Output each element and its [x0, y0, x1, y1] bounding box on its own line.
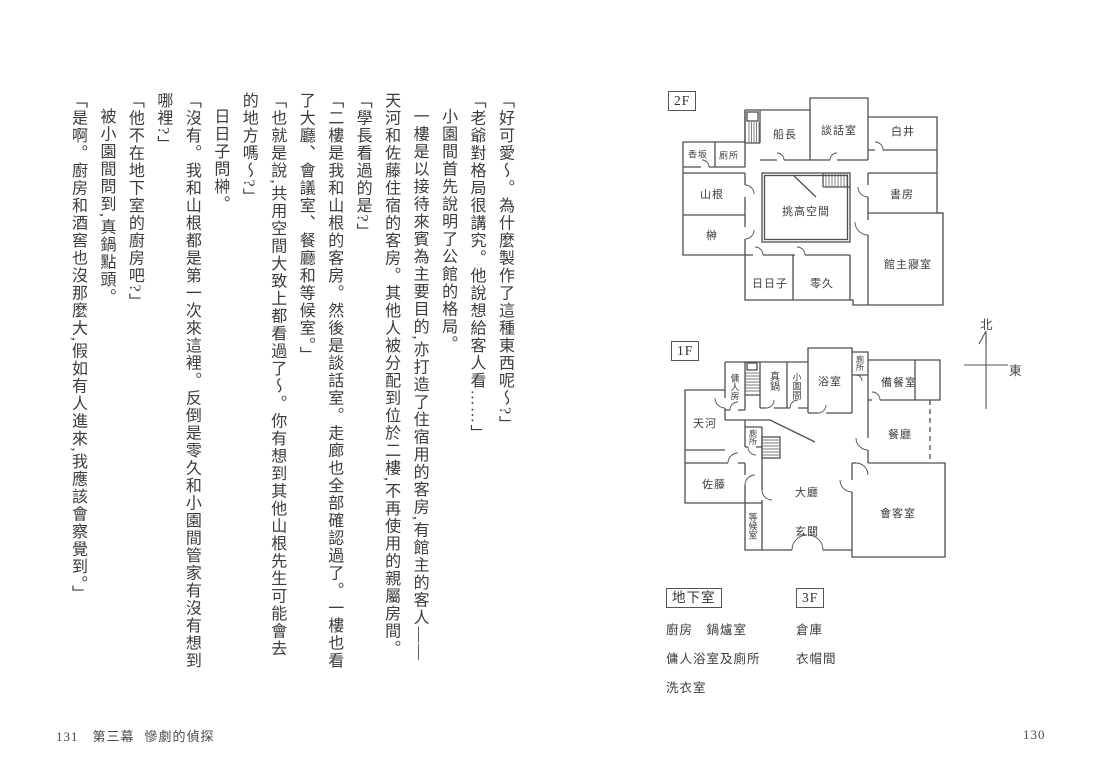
- legend-3f-label: 3F: [796, 588, 824, 608]
- room-label: 真鍋: [766, 371, 781, 391]
- legend-items-1: 倉庫衣帽間: [796, 619, 837, 677]
- room-label: 船長: [773, 126, 797, 142]
- room-label: 餐廳: [888, 426, 912, 442]
- compass-north-label: 北: [980, 314, 993, 333]
- legend-item: 衣帽間: [796, 648, 837, 667]
- room-label: 廁所: [719, 149, 739, 162]
- room-label: 大廳: [795, 484, 819, 500]
- room-label: 白井: [891, 123, 915, 139]
- paragraph: 「好可愛〜。為什麼製作了這種東西呢〜?」: [490, 92, 518, 670]
- room-label: 廁所: [748, 429, 759, 445]
- room-label: 談話室: [821, 122, 857, 138]
- room-label: 會客室: [880, 505, 916, 521]
- paragraph: 小園間首先說明了公館的格局。: [433, 92, 461, 670]
- room-label: 浴室: [818, 373, 842, 389]
- legend-item: 廚房 鍋爐室: [666, 619, 761, 638]
- room-label: 香坂: [688, 148, 708, 161]
- page-left: 「好可愛〜。為什麼製作了這種東西呢〜?」「老爺對格局很講究。他說想給客人看……」…: [0, 0, 550, 781]
- footer-title: 慘劇的偵探: [145, 729, 215, 744]
- room-label: 挑高空間: [782, 203, 830, 219]
- paragraph: 被小園間問到,真鍋點頭。: [91, 92, 119, 670]
- paragraph: 「老爺對格局很講究。他說想給客人看……」: [461, 92, 489, 670]
- room-label: 玄關: [795, 523, 819, 539]
- room-label: 山根: [700, 186, 724, 202]
- room-label: 書房: [890, 186, 914, 202]
- paragraph: 日日子問榊。: [205, 92, 233, 670]
- floorplan-1f: 傭人房真鍋小園間浴室廁所備餐室餐廳天河廁所佐藤大廳玄關等候室會客室: [660, 330, 960, 575]
- room-label: 館主寢室: [884, 256, 932, 272]
- legend-items-0: 廚房 鍋爐室傭人浴室及廁所洗衣室: [666, 619, 761, 706]
- room-label: 等候室: [747, 513, 760, 540]
- paragraph: 「也就是說,共用空間大致上都看過了〜。你有想到其他山根先生可能會去的地方嗎〜?」: [233, 92, 290, 670]
- paragraph: 一樓是以接待來賓為主要目的,亦打造了住宿用的客房,有館主的客人——天河和佐藤住宿…: [376, 92, 433, 670]
- legend-item: 傭人浴室及廁所: [666, 648, 761, 667]
- room-label: 零久: [810, 275, 834, 291]
- floor-label-1f: 1F: [671, 341, 699, 361]
- compass: 北 東: [952, 317, 1022, 417]
- room-label: 天河: [693, 415, 717, 431]
- room-label: 佐藤: [702, 476, 726, 492]
- room-label: 日日子: [752, 275, 788, 291]
- page-number-left: 131: [56, 729, 79, 744]
- legend-basement-label: 地下室: [666, 588, 722, 608]
- floorplan-2f: 香坂廁所船長談話室白井山根榊挑高空間書房館主寢室日日子零久: [665, 85, 960, 320]
- compass-east-label: 東: [1009, 360, 1022, 379]
- paragraph: 「他不在地下室的廚房吧?」: [119, 92, 147, 670]
- room-label: 備餐室: [881, 374, 917, 390]
- legend-item: 洗衣室: [666, 677, 761, 696]
- floor-label-2f: 2F: [668, 91, 696, 111]
- paragraph: 「學長看過的是?」: [347, 92, 375, 670]
- footer-chapter: 第三幕: [93, 729, 135, 744]
- paragraph: 「沒有。我和山根都是第一次來這裡。反倒是零久和小園間管家有沒有想到哪裡?」: [148, 92, 205, 670]
- page-number-right: 130: [1023, 727, 1046, 743]
- legend-item: 倉庫: [796, 619, 837, 638]
- paragraph: 「二樓是我和山根的客房。然後是談話室。走廊也全部確認過了。一樓也看了大廳、會議室…: [290, 92, 347, 670]
- room-label: 小園間: [791, 373, 804, 400]
- room-label: 傭人房: [729, 374, 742, 401]
- body-text: 「好可愛〜。為什麼製作了這種東西呢〜?」「老爺對格局很講究。他說想給客人看……」…: [36, 92, 518, 670]
- room-label: 榊: [706, 227, 718, 243]
- room-label: 廁所: [855, 355, 866, 371]
- footer-left: 131第三幕慘劇的偵探: [56, 726, 229, 745]
- paragraph: 「是啊。廚房和酒窖也沒那麼大,假如有人進來,我應該會察覺到。」: [63, 92, 91, 670]
